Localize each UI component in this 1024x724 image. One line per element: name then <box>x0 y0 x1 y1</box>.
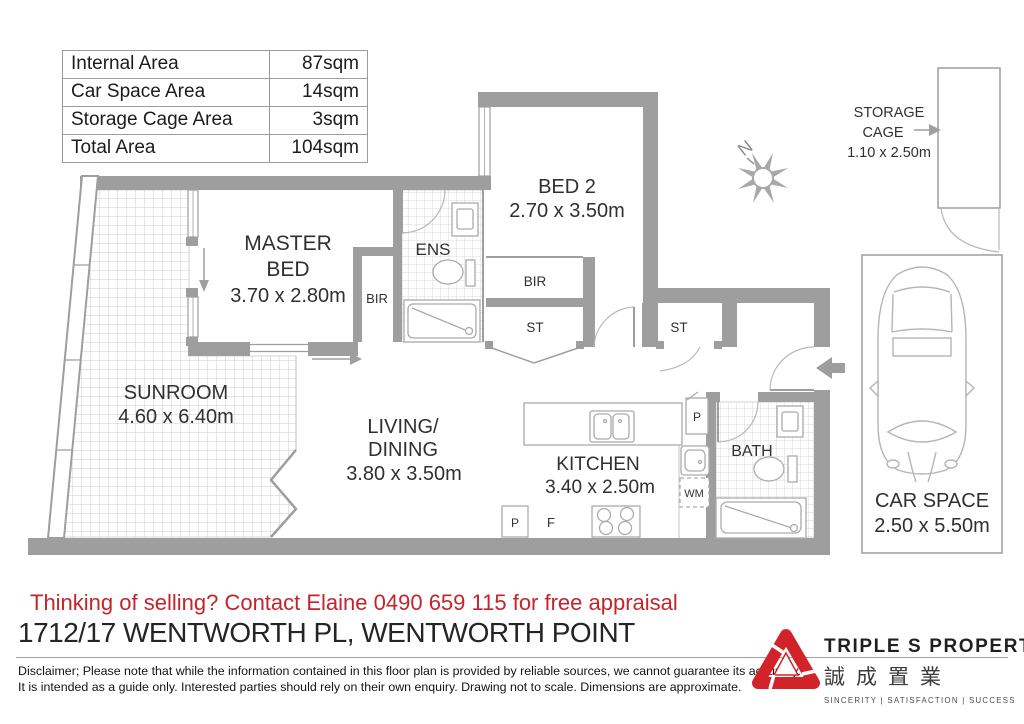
master-bed-dims: 3.70 x 2.80m <box>230 285 346 307</box>
property-address: 1712/17 WENTWORTH PL, WENTWORTH POINT <box>18 617 635 649</box>
master-bed-label-1: MASTER <box>244 232 332 255</box>
area-label: Internal Area <box>63 51 270 79</box>
triple-s-logo-icon <box>752 627 820 695</box>
storage-cage-label-2: CAGE <box>862 125 903 141</box>
ens-label: ENS <box>416 240 451 259</box>
living-dining-label-2: DINING <box>368 439 438 461</box>
st-left-label: ST <box>526 320 543 335</box>
area-label: Total Area <box>63 135 270 163</box>
table-row: Total Area 104sqm <box>63 135 368 163</box>
p-kitchen-label: P <box>511 516 519 530</box>
car-icon <box>870 267 974 482</box>
kitchen-dims: 3.40 x 2.50m <box>545 477 655 498</box>
disclaimer-line-1: Disclaimer; Please note that while the i… <box>18 663 801 679</box>
floor-plan-page: N <box>0 0 1024 724</box>
compass-icon: N <box>734 136 788 203</box>
car-space-dims: 2.50 x 5.50m <box>874 515 990 537</box>
entry-arrow-icon <box>816 357 845 379</box>
sliding-door-arrow-down-icon <box>199 248 209 292</box>
area-label: Car Space Area <box>63 79 270 107</box>
brand-block: TRIPLE S PROPERTY 誠成置業 SINCERITY | SATIS… <box>824 636 1024 705</box>
disclaimer-line-2: It is intended as a guide only. Interest… <box>18 679 801 695</box>
st-right-label: ST <box>670 320 687 335</box>
area-label: Storage Cage Area <box>63 107 270 135</box>
storage-cage-dims: 1.10 x 2.50m <box>847 145 931 161</box>
bir-master-label: BIR <box>366 291 388 306</box>
bed2-window <box>479 107 490 176</box>
area-value: 3sqm <box>269 107 367 135</box>
brand-chinese-name: 誠成置業 <box>824 661 1024 691</box>
car-space-label: CAR SPACE <box>875 490 989 512</box>
wm-label: WM <box>684 488 704 500</box>
area-value: 14sqm <box>269 79 367 107</box>
brand-name: TRIPLE S PROPERTY <box>824 636 1024 658</box>
fridge-label: F <box>547 515 555 530</box>
storage-cage-label-1: STORAGE <box>854 105 925 121</box>
table-row: Storage Cage Area 3sqm <box>63 107 368 135</box>
kitchen-label: KITCHEN <box>556 454 639 475</box>
living-dining-label-1: LIVING/ <box>367 416 439 438</box>
sunroom-dims: 4.60 x 6.40m <box>118 406 234 428</box>
bed2-dims: 2.70 x 3.50m <box>509 200 625 222</box>
table-row: Internal Area 87sqm <box>63 51 368 79</box>
table-row: Car Space Area 14sqm <box>63 79 368 107</box>
bed2-label: BED 2 <box>538 176 596 198</box>
area-summary-table: Internal Area 87sqm Car Space Area 14sqm… <box>62 50 368 163</box>
area-value: 87sqm <box>269 51 367 79</box>
master-bed-label-2: BED <box>266 258 309 281</box>
master-pocket-door <box>250 345 308 352</box>
p-hall-label: P <box>693 410 701 424</box>
sunroom-label: SUNROOM <box>124 382 228 404</box>
brand-tagline: SINCERITY | SATISFACTION | SUCCESS <box>824 696 1024 705</box>
master-window <box>188 190 198 337</box>
bir-bed2-label: BIR <box>524 274 547 289</box>
disclaimer: Disclaimer; Please note that while the i… <box>18 663 801 695</box>
area-value: 104sqm <box>269 135 367 163</box>
bath-label: BATH <box>731 443 772 460</box>
marketing-line: Thinking of selling? Contact Elaine 0490… <box>30 590 678 616</box>
living-dining-dims: 3.80 x 3.50m <box>346 463 462 485</box>
